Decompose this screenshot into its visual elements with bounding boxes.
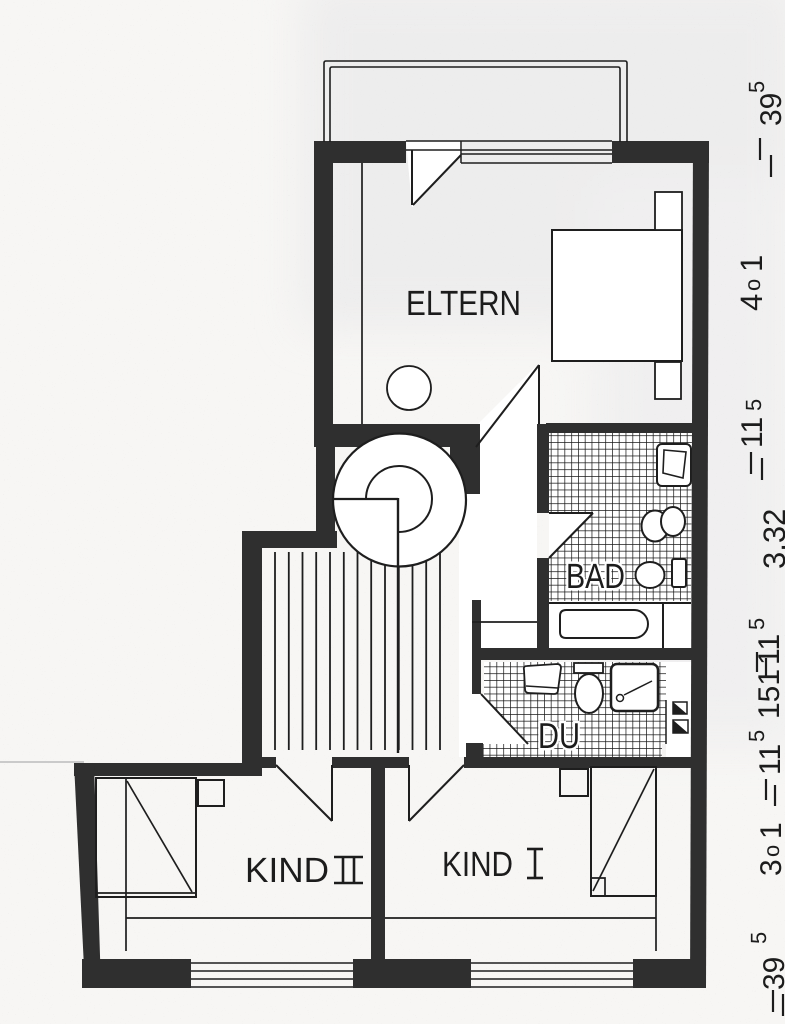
svg-text:5: 5	[741, 399, 766, 411]
svg-text:KIND: KIND	[245, 851, 329, 890]
svg-text:1: 1	[734, 255, 769, 272]
svg-text:o: o	[740, 279, 765, 291]
svg-text:39: 39	[755, 93, 785, 126]
svg-text:BAD: BAD	[566, 557, 625, 596]
svg-text:4: 4	[734, 294, 769, 311]
svg-text:5: 5	[744, 618, 769, 630]
svg-text:KIND: KIND	[442, 845, 513, 884]
svg-text:5: 5	[744, 81, 769, 93]
svg-text:ELTERN: ELTERN	[406, 284, 521, 323]
svg-text:151: 151	[753, 669, 785, 719]
svg-text:11: 11	[736, 417, 769, 448]
svg-text:3: 3	[755, 859, 785, 876]
svg-text:11: 11	[754, 744, 785, 775]
svg-text:o: o	[759, 845, 784, 857]
svg-text:5: 5	[746, 932, 771, 944]
svg-text:DU: DU	[538, 715, 580, 756]
svg-text:5: 5	[744, 730, 769, 742]
svg-text:39: 39	[758, 957, 785, 990]
svg-text:3.32: 3.32	[757, 509, 785, 569]
svg-text:1: 1	[755, 822, 785, 839]
